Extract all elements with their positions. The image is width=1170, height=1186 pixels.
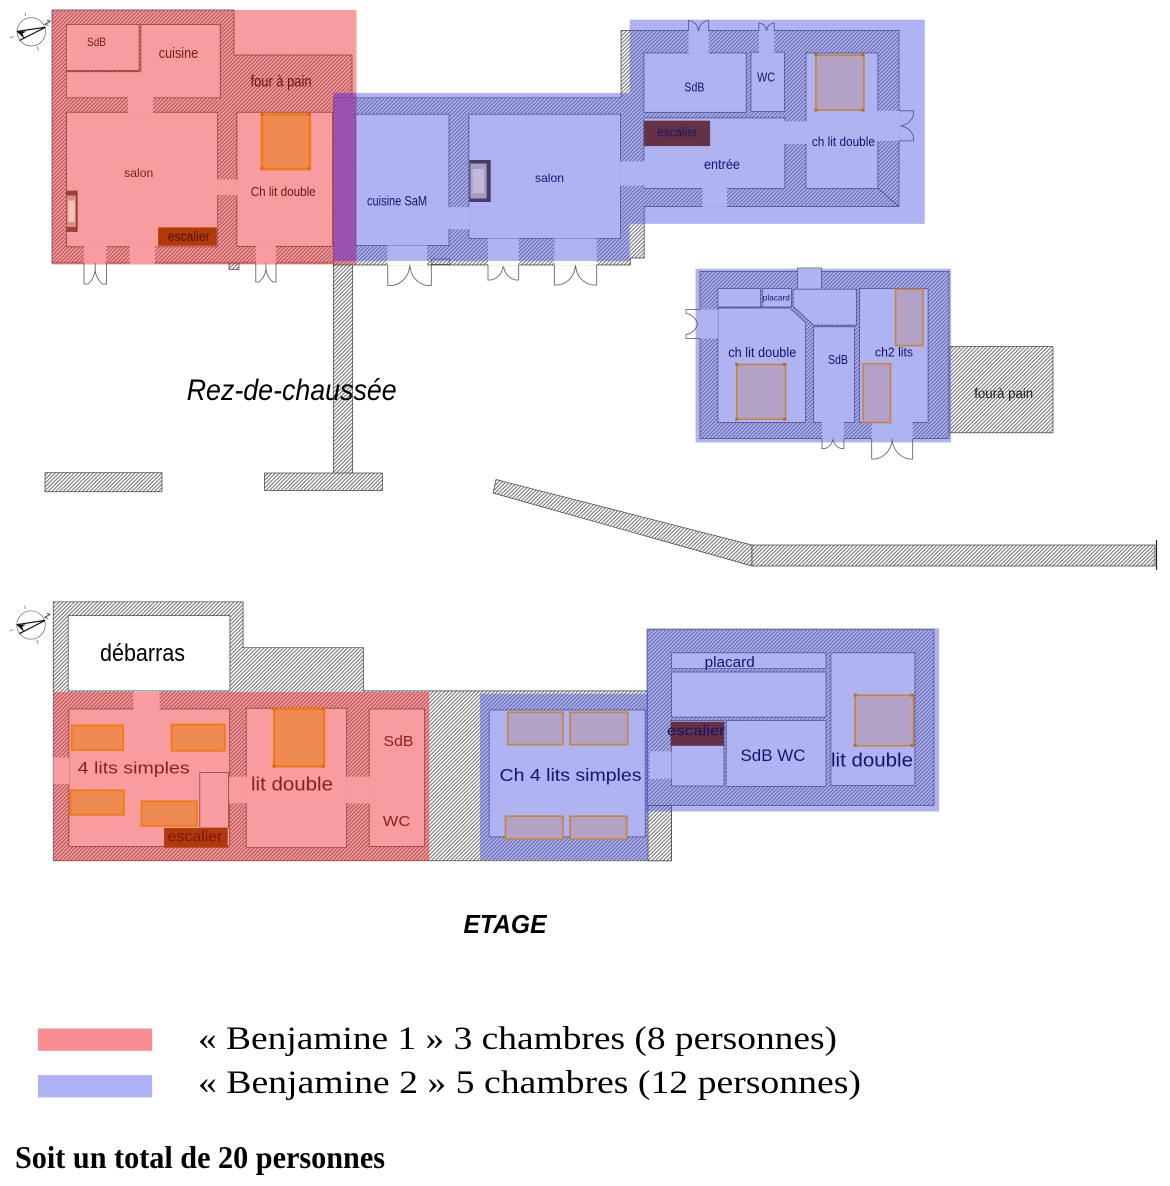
svg-text:placard: placard — [763, 292, 790, 302]
svg-text:lit double: lit double — [251, 775, 333, 796]
svg-text:cuisine SaM: cuisine SaM — [367, 193, 427, 209]
svg-text:ch2 lits: ch2 lits — [875, 345, 913, 360]
svg-text:SdB WC: SdB WC — [741, 747, 806, 765]
svg-text:ETAGE: ETAGE — [464, 911, 548, 939]
svg-text:WC: WC — [383, 814, 411, 830]
svg-text:fourà pain: fourà pain — [974, 386, 1033, 401]
svg-text:WC: WC — [757, 71, 775, 85]
svg-text:4 lits simples: 4 lits simples — [78, 759, 190, 778]
svg-text:placard: placard — [705, 655, 755, 671]
svg-text:« Benjamine 1 » 3 chambres (8: « Benjamine 1 » 3 chambres (8 personnes) — [198, 1021, 837, 1057]
svg-text:escalier: escalier — [168, 829, 223, 846]
svg-text:SdB: SdB — [684, 81, 704, 95]
svg-text:ch lit double: ch lit double — [728, 345, 796, 360]
svg-text:Rez-de-chaussée: Rez-de-chaussée — [187, 374, 397, 407]
svg-text:débarras: débarras — [100, 640, 185, 667]
svg-text:entrée: entrée — [704, 157, 740, 172]
svg-text:escalier: escalier — [667, 724, 725, 740]
svg-text:escalier: escalier — [657, 125, 698, 140]
svg-text:salon: salon — [124, 166, 153, 180]
svg-text:four à pain: four à pain — [251, 74, 312, 91]
svg-text:Ch 4 lits simples: Ch 4 lits simples — [500, 765, 642, 785]
svg-text:cuisine: cuisine — [159, 45, 199, 62]
svg-text:salon: salon — [535, 171, 564, 185]
svg-text:SdB: SdB — [384, 734, 414, 750]
svg-text:escalier: escalier — [168, 229, 210, 244]
svg-text:Soit un total de 20 personnes: Soit un total de 20 personnes — [15, 1139, 385, 1175]
svg-text:Ch lit double: Ch lit double — [251, 184, 316, 199]
svg-text:« Benjamine 2 » 5 chambres (12: « Benjamine 2 » 5 chambres (12 personnes… — [198, 1065, 861, 1101]
svg-text:ch lit double: ch lit double — [812, 134, 875, 149]
svg-text:SdB: SdB — [87, 35, 106, 49]
svg-text:SdB: SdB — [828, 353, 848, 367]
svg-text:lit double: lit double — [831, 751, 913, 772]
